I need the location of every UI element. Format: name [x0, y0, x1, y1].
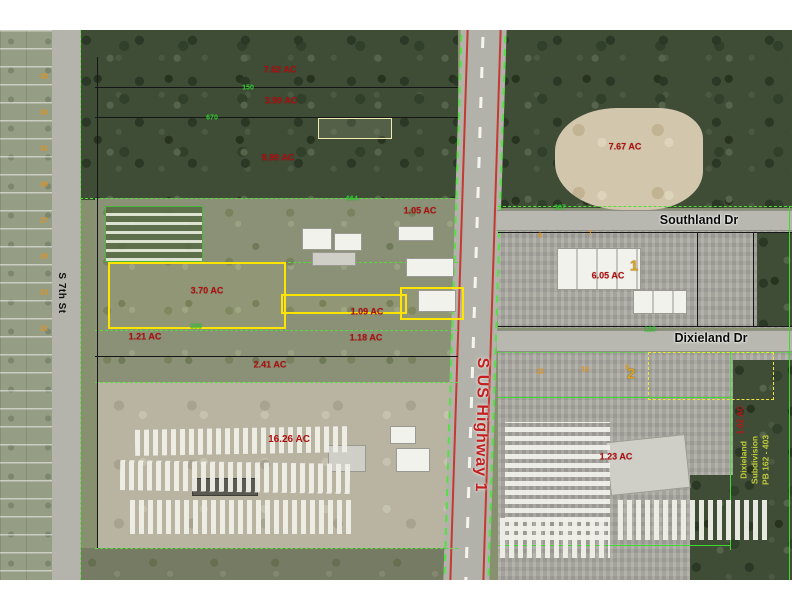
- lot-number-label: 35: [40, 74, 48, 81]
- subdivision-note-line: Subdivision: [749, 435, 760, 485]
- street-s-7th-st-label: S 7th St: [56, 272, 66, 313]
- lot-number-label: 23: [40, 290, 48, 297]
- lot-number-label: 33: [40, 110, 48, 117]
- street-dixieland-dr-label: Dixieland Dr: [675, 332, 748, 345]
- dimension-label: 125: [644, 327, 656, 334]
- lot-number-label: 12: [536, 369, 544, 376]
- dimension-label: 664: [346, 196, 358, 203]
- label-layer: 7.62 AC3.90 AC9.99 AC1.05 AC3.70 AC1.09 …: [0, 30, 792, 580]
- acreage-label: 1.18 AC: [350, 334, 383, 343]
- acreage-label: 2.41 AC: [254, 361, 287, 370]
- acreage-label: 1.21 AC: [129, 333, 162, 342]
- acreage-label: 1.05 AC: [404, 207, 437, 216]
- letterbox-bottom: [0, 580, 792, 612]
- lot-number-label: 8: [538, 233, 542, 240]
- lot-number-label: 29: [40, 182, 48, 189]
- acreage-label: 7.67 AC: [609, 143, 642, 152]
- acreage-label: 1.23 AC: [600, 453, 633, 462]
- subject-acreage-label: 3.70 AC: [191, 287, 224, 296]
- lot-number-label: 21: [40, 326, 48, 333]
- subdivision-note: Dixieland Subdivision PB 162 - 403: [738, 435, 771, 485]
- acreage-label: 1.09 AC: [351, 308, 384, 317]
- acreage-label: 16.26 AC: [268, 435, 310, 445]
- acreage-label: 3.90 AC: [265, 97, 298, 106]
- dimension-label: 670: [206, 115, 218, 122]
- dimension-label: 330: [190, 324, 202, 331]
- dimension-label: 307: [554, 205, 566, 212]
- lot-number-label: 31: [40, 146, 48, 153]
- acreage-vertical-label: 1.02 AC: [737, 405, 745, 434]
- acreage-label: 7.62 AC: [264, 66, 297, 75]
- aerial-map: 7.62 AC3.90 AC9.99 AC1.05 AC3.70 AC1.09 …: [0, 30, 792, 580]
- lot-number-label: 9: [625, 365, 629, 372]
- lot-number-label: 7: [588, 231, 592, 238]
- lot-number-label: 10: [581, 367, 589, 374]
- acreage-label: 6.05 AC: [592, 272, 625, 281]
- lot-number-label: 27: [40, 218, 48, 225]
- lot-number-label: 25: [40, 254, 48, 261]
- aerial-parcel-map-screenshot: 7.62 AC3.90 AC9.99 AC1.05 AC3.70 AC1.09 …: [0, 0, 792, 612]
- subdivision-note-line: PB 162 - 403: [761, 435, 772, 485]
- street-s-us-highway-1-label: S US Highway 1: [472, 357, 490, 492]
- street-southland-dr-label: Southland Dr: [660, 214, 738, 227]
- block-number-label: 1: [630, 259, 638, 274]
- dimension-label: 150: [242, 85, 254, 92]
- letterbox-top: [0, 0, 792, 30]
- subdivision-note-line: Dixieland: [738, 435, 749, 485]
- acreage-label: 9.99 AC: [262, 154, 295, 163]
